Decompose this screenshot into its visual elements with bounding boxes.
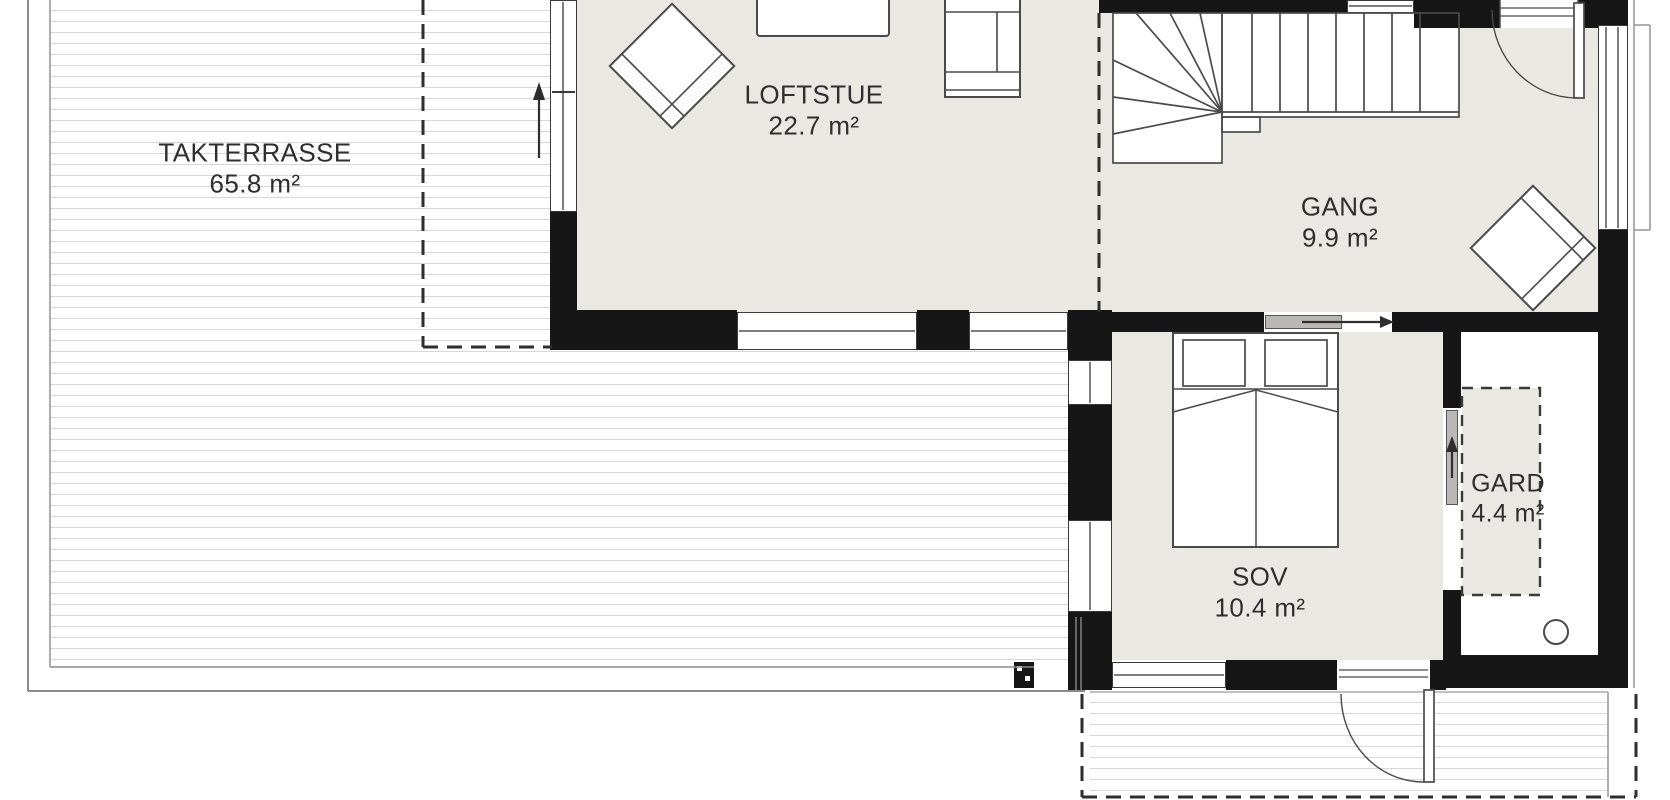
room-name: TAKTERRASSE — [158, 137, 351, 168]
floor-plan: TAKTERRASSE 65.8 m² LOFTSTUE 22.7 m² GAN… — [0, 0, 1670, 800]
door — [1492, 0, 1584, 98]
armchair — [1471, 186, 1595, 310]
room-area: 9.9 m² — [1301, 222, 1379, 253]
terrace-border — [28, 0, 1085, 691]
door — [1339, 670, 1434, 782]
room-name: LOFTSTUE — [745, 79, 884, 110]
coffee-table — [757, 0, 889, 36]
room-area: 4.4 m² — [1471, 499, 1545, 529]
room-label-loftstue: LOFTSTUE 22.7 m² — [745, 79, 884, 140]
sofa — [945, 0, 1020, 97]
room-label-sov: SOV 10.4 m² — [1215, 561, 1306, 622]
glazing-lines — [552, 2, 1618, 675]
room-name: SOV — [1215, 561, 1306, 592]
room-label-gang: GANG 9.9 m² — [1301, 191, 1379, 252]
armchair — [610, 4, 734, 128]
room-name: GANG — [1301, 191, 1379, 222]
room-label-gard: GARD 4.4 m² — [1471, 470, 1545, 529]
bed — [1173, 333, 1338, 547]
room-area: 65.8 m² — [158, 168, 351, 199]
room-name: GARD — [1471, 470, 1545, 500]
dashed-boundaries — [423, 0, 1636, 797]
room-area: 22.7 m² — [745, 110, 884, 141]
room-label-takterrasse: TAKTERRASSE 65.8 m² — [158, 137, 351, 198]
stairs — [1113, 13, 1459, 163]
room-area: 10.4 m² — [1215, 592, 1306, 623]
column-circle — [1544, 620, 1568, 644]
